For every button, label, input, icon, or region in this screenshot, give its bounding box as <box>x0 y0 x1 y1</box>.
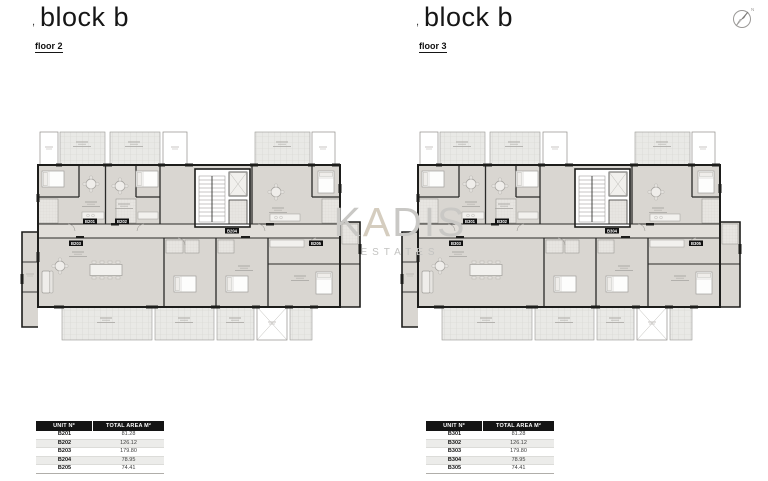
stair-core <box>575 169 630 227</box>
unit-tag: B203 <box>69 241 83 247</box>
svg-text:B201: B201 <box>85 219 96 224</box>
table-row: B303179.80 <box>426 448 554 457</box>
unit-table-floor3: UNIT Nº TOTAL AREA M² B30181.28 B302126.… <box>426 421 554 474</box>
stair-core <box>195 169 250 227</box>
floor-plan-floor2: B201 B202 B203 B204 B205 <box>16 124 372 342</box>
svg-text:B203: B203 <box>71 241 82 246</box>
svg-text:B301: B301 <box>465 219 476 224</box>
table-row: B30574.41 <box>426 465 554 474</box>
unit-tag: B202 <box>115 219 129 225</box>
table-row: B30478.95 <box>426 457 554 466</box>
table-row: B20478.95 <box>36 457 164 466</box>
header-area: TOTAL AREA M² <box>93 421 164 431</box>
unit-tag: B304 <box>605 228 619 234</box>
svg-text:B302: B302 <box>497 219 508 224</box>
compass-icon: N <box>729 4 757 32</box>
title-mark: , <box>416 16 419 28</box>
svg-text:B304: B304 <box>607 228 618 233</box>
svg-text:B202: B202 <box>117 219 128 224</box>
unit-tag: B301 <box>463 219 477 225</box>
table-header: UNIT Nº TOTAL AREA M² <box>426 421 554 431</box>
svg-text:B205: B205 <box>311 241 322 246</box>
unit-tag: B201 <box>83 219 97 225</box>
table-row: B20574.41 <box>36 465 164 474</box>
svg-text:B204: B204 <box>227 228 238 233</box>
unit-tag: B205 <box>309 241 323 247</box>
unit-tag: B204 <box>225 228 239 234</box>
table-row: B20181.28 <box>36 431 164 440</box>
table-row: B203179.80 <box>36 448 164 457</box>
table-row: B202126.12 <box>36 440 164 449</box>
page-title-floor2: block b <box>40 2 129 33</box>
floor-plan: B201 B202 B203 B204 B205 <box>16 124 372 342</box>
header-area: TOTAL AREA M² <box>483 421 554 431</box>
unit-tag: B305 <box>689 241 703 247</box>
svg-text:N: N <box>751 7 754 12</box>
title-mark: , <box>32 16 35 28</box>
table-header: UNIT Nº TOTAL AREA M² <box>36 421 164 431</box>
page: , block b floor 2 , block b floor 3 N <box>0 0 768 481</box>
unit-tag: B302 <box>495 219 509 225</box>
table-row: B30181.28 <box>426 431 554 440</box>
table-row: B302126.12 <box>426 440 554 449</box>
svg-text:B303: B303 <box>451 241 462 246</box>
unit-tag: B303 <box>449 241 463 247</box>
floor-plan: B301 B302 B303 B304 B305 <box>396 124 752 342</box>
floor-plan-floor3: B301 B302 B303 B304 B305 <box>396 124 752 342</box>
unit-table-floor2: UNIT Nº TOTAL AREA M² B20181.28 B202126.… <box>36 421 164 474</box>
svg-text:B305: B305 <box>691 241 702 246</box>
header-unit: UNIT Nº <box>426 421 483 431</box>
floor-label-floor3: floor 3 <box>419 41 447 53</box>
header-unit: UNIT Nº <box>36 421 93 431</box>
floor-label-floor2: floor 2 <box>35 41 63 53</box>
page-title-floor3: block b <box>424 2 513 33</box>
